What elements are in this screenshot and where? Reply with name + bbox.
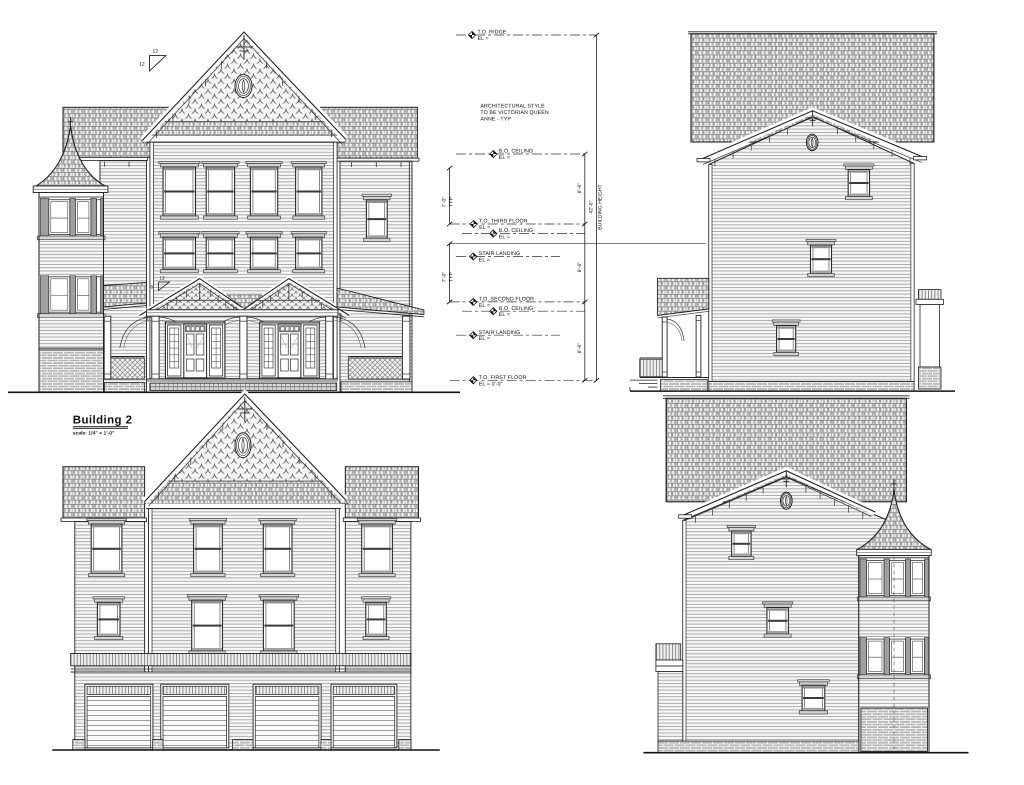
svg-text:8'-6": 8'-6" bbox=[577, 183, 583, 194]
svg-text:scale: 1/4" = 1'-0": scale: 1/4" = 1'-0" bbox=[73, 431, 115, 437]
svg-text:BUILDING HEIGHT: BUILDING HEIGHT bbox=[598, 184, 604, 229]
svg-text:T.O. THIRD FLOOR: T.O. THIRD FLOOR bbox=[479, 219, 528, 225]
svg-text:EL =: EL = bbox=[479, 336, 490, 342]
svg-text:EL =: EL = bbox=[479, 258, 490, 264]
svg-text:STAIR LANDING: STAIR LANDING bbox=[479, 251, 521, 257]
svg-text:8: 8 bbox=[151, 285, 154, 290]
svg-text:42'-6": 42'-6" bbox=[589, 200, 595, 213]
svg-text:TO BE VICTORIAN QUEEN: TO BE VICTORIAN QUEEN bbox=[480, 110, 548, 116]
svg-text:8'-6": 8'-6" bbox=[577, 343, 583, 354]
svg-text:T.O. FIRST FLOOR: T.O. FIRST FLOOR bbox=[479, 375, 527, 381]
svg-text:ANNE - TYP: ANNE - TYP bbox=[480, 117, 511, 123]
svg-text:STAIR LANDING: STAIR LANDING bbox=[479, 330, 521, 336]
svg-text:T.O. RIDGE: T.O. RIDGE bbox=[478, 30, 507, 36]
svg-text:EL = 0'-0": EL = 0'-0" bbox=[479, 381, 503, 387]
svg-text:B.O. CEILING: B.O. CEILING bbox=[499, 228, 533, 234]
svg-text:ARCHITECTURAL STYLE: ARCHITECTURAL STYLE bbox=[480, 104, 545, 110]
svg-text:EL =: EL = bbox=[479, 303, 490, 309]
svg-text:12: 12 bbox=[160, 276, 166, 281]
svg-text:B.O. CEILING: B.O. CEILING bbox=[499, 149, 533, 155]
svg-text:EL =: EL = bbox=[479, 225, 490, 231]
svg-text:Building 2: Building 2 bbox=[73, 415, 133, 427]
svg-text:B.O. CEILING: B.O. CEILING bbox=[499, 306, 533, 312]
svg-text:12: 12 bbox=[153, 49, 159, 55]
svg-text:EL =: EL = bbox=[499, 312, 510, 318]
svg-text:EL =: EL = bbox=[499, 235, 510, 241]
svg-text:EL =: EL = bbox=[499, 155, 510, 161]
svg-text:8'-6": 8'-6" bbox=[577, 262, 583, 273]
svg-text:EL =: EL = bbox=[478, 36, 489, 42]
svg-text:12: 12 bbox=[139, 62, 145, 68]
svg-text:T.O. SECOND FLOOR: T.O. SECOND FLOOR bbox=[479, 297, 534, 303]
svg-text:7'-0": 7'-0" bbox=[442, 272, 448, 283]
svg-text:7'-0": 7'-0" bbox=[442, 197, 448, 208]
svg-text:TYP: TYP bbox=[449, 271, 455, 282]
svg-text:TYP: TYP bbox=[449, 196, 455, 207]
